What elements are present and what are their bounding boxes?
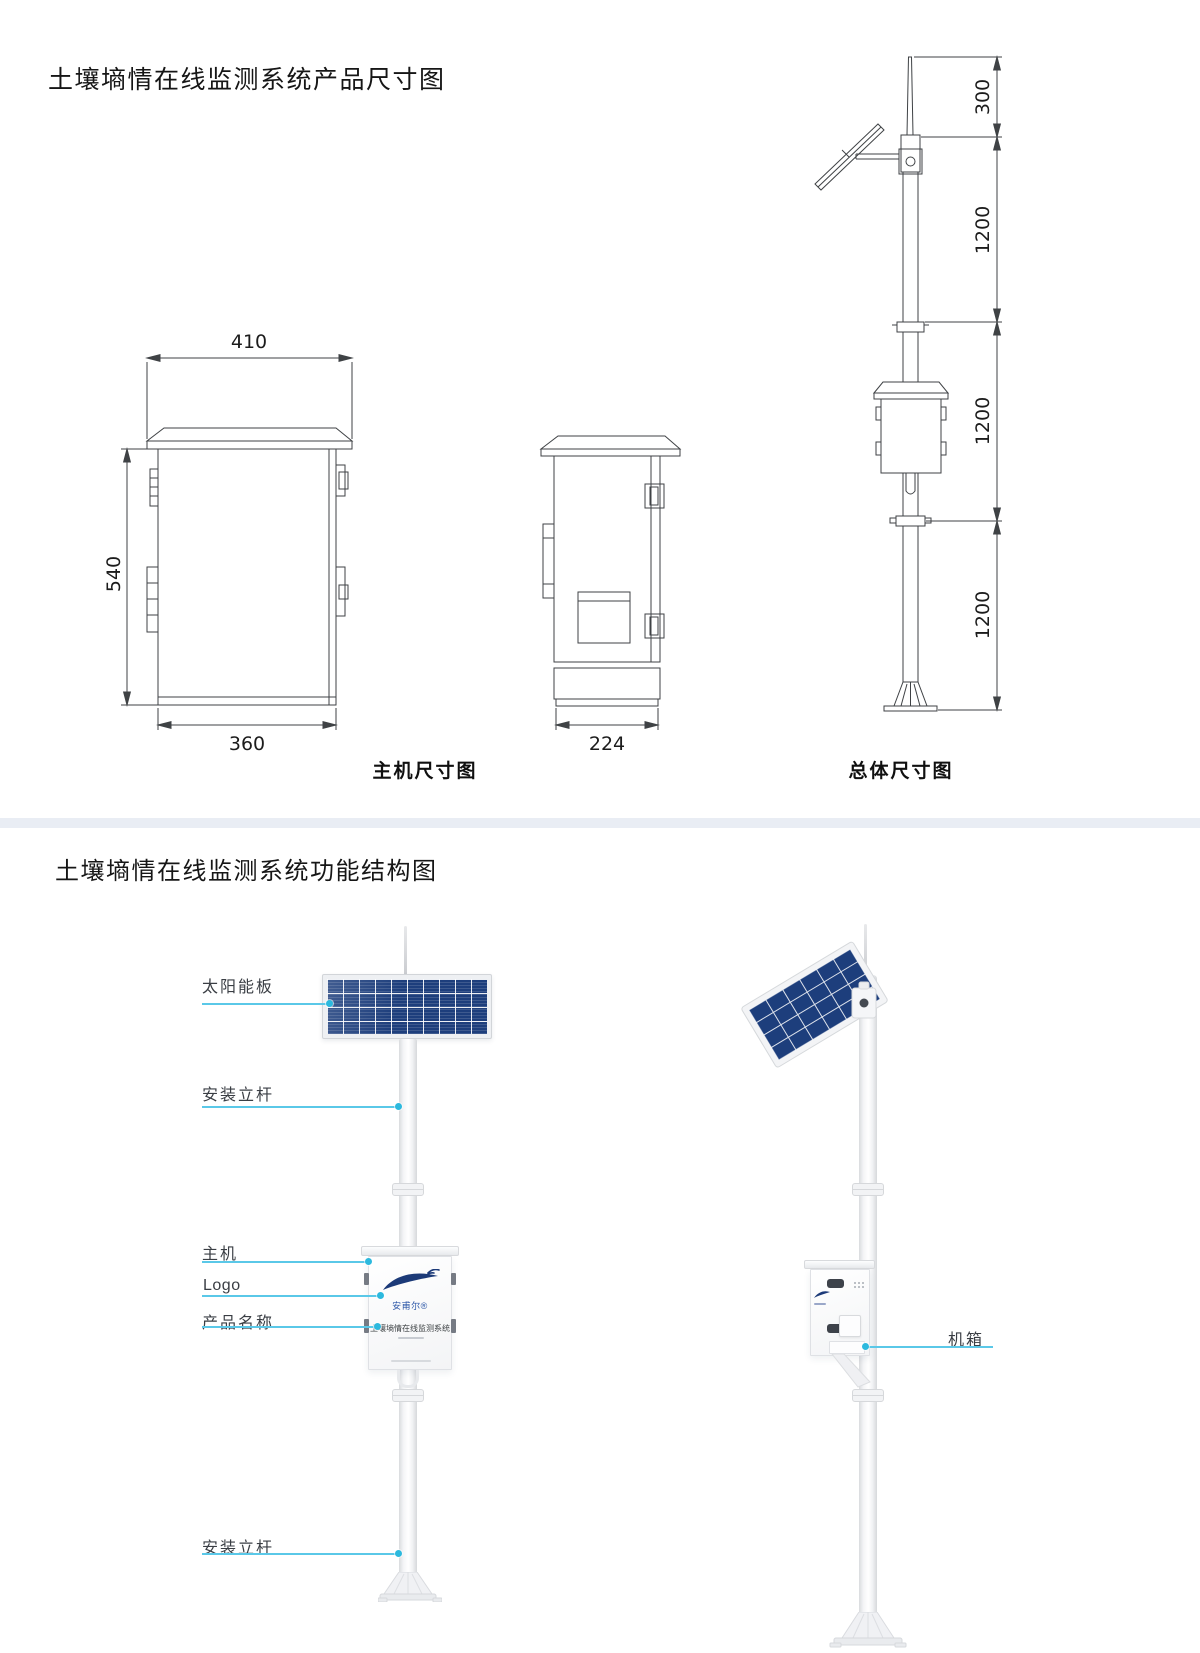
- vent-dots: [853, 1281, 866, 1290]
- callout-dot-mount-pole-lower: [395, 1550, 402, 1557]
- callout-dot-solar-panel: [326, 1000, 333, 1007]
- callout-line-logo: [202, 1295, 381, 1297]
- dim-front-top-width: [147, 355, 352, 439]
- pole-base-side: [828, 1612, 908, 1650]
- label-solar-panel: 太阳能板: [202, 973, 274, 997]
- cabinet-side-roof: [804, 1260, 875, 1269]
- brand-logo-swoosh-icon: [381, 1269, 441, 1295]
- dim-value-middle-pole: 1200: [971, 381, 995, 461]
- cabinet-side-port: [839, 1315, 861, 1337]
- dimension-drawings: [0, 0, 1200, 800]
- callout-dot-product-name: [374, 1323, 381, 1330]
- caption-overall-dimensions: 总体尺寸图: [801, 756, 1001, 783]
- pole-base-front: [378, 1572, 442, 1602]
- dim-value-front-bottom-width: 360: [207, 733, 287, 755]
- product-name-text: 土壤墒情在线监测系统: [369, 1323, 451, 1334]
- callout-line-cabinet: [866, 1346, 993, 1348]
- callout-line-mount-pole-lower: [202, 1553, 399, 1555]
- callout-line-mount-pole-upper: [202, 1106, 399, 1108]
- dim-value-front-top-width: 410: [209, 331, 289, 353]
- cable-loop-bracket: [397, 1370, 419, 1388]
- dim-value-upper-pole: 1200: [971, 190, 995, 270]
- dim-front-bottom-width: [158, 708, 336, 730]
- callout-line-product-name: [202, 1326, 379, 1328]
- callout-dot-cabinet: [862, 1343, 869, 1350]
- cabinet-latch-right-bottom: [451, 1319, 456, 1333]
- pole-flange-side-upper: [852, 1183, 884, 1196]
- cabinet-latch-right-top: [451, 1273, 456, 1285]
- callout-dot-mount-pole-upper: [395, 1103, 402, 1110]
- cabinet-brace: [828, 1354, 872, 1390]
- model-text-bar: [398, 1337, 424, 1339]
- callout-dot-logo: [377, 1292, 384, 1299]
- side-brand-bar: [814, 1303, 826, 1305]
- solar-panel-cells-front: [327, 979, 487, 1034]
- antenna-front: [404, 926, 407, 976]
- dim-value-lower-pole: 1200: [971, 575, 995, 655]
- front-view-drawing: [121, 355, 352, 730]
- label-mount-pole-upper: 安装立杆: [202, 1081, 274, 1105]
- callout-dot-host: [365, 1258, 372, 1265]
- dim-side-depth: [556, 708, 658, 730]
- dim-value-front-height: 540: [102, 534, 126, 614]
- dim-value-antenna: 300: [971, 57, 995, 137]
- brand-name-text: 安甫尔®: [369, 1299, 451, 1312]
- solar-panel-side: [728, 932, 903, 1082]
- pole-flange-side-lower: [852, 1389, 884, 1402]
- pole-flange-front-upper: [392, 1183, 424, 1196]
- dim-value-side-depth: 224: [567, 733, 647, 755]
- page: 土壤墒情在线监测系统产品尺寸图: [0, 0, 1200, 1653]
- section-divider: [0, 818, 1200, 828]
- host-cabinet: 安甫尔® 土壤墒情在线监测系统: [368, 1256, 452, 1370]
- cabinet-hinge-left-top: [364, 1273, 369, 1285]
- side-logo-swoosh-icon: [813, 1290, 831, 1300]
- callout-line-host: [202, 1261, 369, 1263]
- host-cabinet-roof: [361, 1246, 459, 1256]
- callout-line-solar-panel: [202, 1003, 330, 1005]
- label-logo: Logo: [203, 1277, 241, 1295]
- side-view-drawing: [541, 436, 680, 730]
- cabinet-side-hinge-top: [827, 1279, 844, 1288]
- cabinet-side-drawer: [829, 1341, 865, 1354]
- pole-flange-front-lower: [392, 1389, 424, 1402]
- label-product-name: 产品名称: [202, 1309, 274, 1333]
- footer-text-bar: [391, 1360, 431, 1362]
- caption-host-dimensions: 主机尺寸图: [325, 756, 525, 783]
- function-section-title: 土壤墒情在线监测系统功能结构图: [55, 851, 438, 886]
